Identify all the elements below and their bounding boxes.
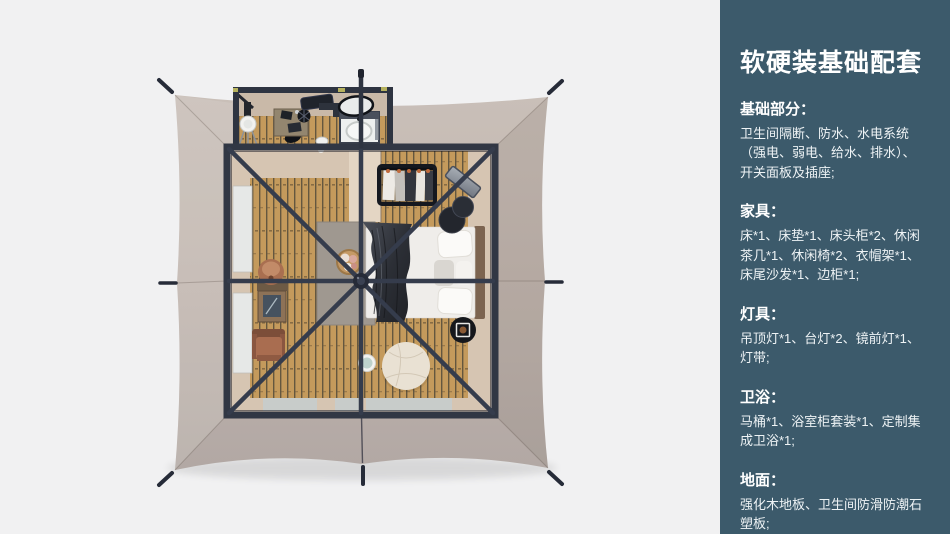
bathroom: [233, 87, 390, 148]
section-heading: 地面：: [740, 469, 922, 490]
section-body: 马桶*1、浴室柜套装*1、定制集成卫浴*1;: [740, 412, 922, 451]
section-body: 吊顶灯*1、台灯*2、镜前灯*1、灯带;: [740, 329, 922, 368]
canopy-right-shade: [495, 97, 548, 468]
section-heading: 卫浴：: [740, 386, 922, 407]
headboard: [474, 226, 485, 319]
wall-mirror: [257, 282, 288, 322]
section-basics: 基础部分： 卫生间隔断、防水、水电系统（强电、弱电、给水、排水）、开关面板及插座…: [740, 98, 922, 183]
section-body: 床*1、床垫*1、床头柜*2、休闲茶几*1、休闲椅*2、衣帽架*1、床尾沙发*1…: [740, 226, 922, 285]
pillows: [434, 230, 473, 315]
bean-bag-pouf: [382, 342, 430, 392]
section-lighting: 灯具： 吊顶灯*1、台灯*2、镜前灯*1、灯带;: [740, 303, 922, 368]
slide: 软硬装基础配套 基础部分： 卫生间隔断、防水、水电系统（强电、弱电、给水、排水）…: [0, 0, 950, 534]
section-heading: 基础部分：: [740, 98, 922, 119]
clothes-rack: [379, 166, 435, 204]
bed: [363, 222, 485, 322]
section-bathroom: 卫浴： 马桶*1、浴室柜套装*1、定制集成卫浴*1;: [740, 386, 922, 451]
section-flooring: 地面： 强化木地板、卫生间防滑防潮石塑板;: [740, 469, 922, 534]
section-furniture: 家具： 床*1、床垫*1、床头柜*2、休闲茶几*1、休闲椅*2、衣帽架*1、床尾…: [740, 200, 922, 285]
pole-tip: [358, 69, 364, 78]
sidebar-title: 软硬装基础配套: [740, 50, 934, 78]
section-body: 卫生间隔断、防水、水电系统（强电、弱电、给水、排水）、开关面板及插座;: [740, 124, 922, 183]
center-guy-line: [362, 416, 363, 463]
info-sidebar: 软硬装基础配套 基础部分： 卫生间隔断、防水、水电系统（强电、弱电、给水、排水）…: [720, 0, 950, 534]
section-body: 强化木地板、卫生间防滑防潮石塑板;: [740, 495, 922, 534]
section-heading: 灯具：: [740, 303, 922, 324]
floor-mats: [263, 398, 452, 411]
center-hub: [353, 273, 369, 289]
armchair: [252, 329, 285, 361]
floor-plan-render: [0, 0, 720, 534]
section-heading: 家具：: [740, 200, 922, 221]
entry-runner: [349, 151, 381, 222]
round-tray-table: [450, 317, 476, 343]
